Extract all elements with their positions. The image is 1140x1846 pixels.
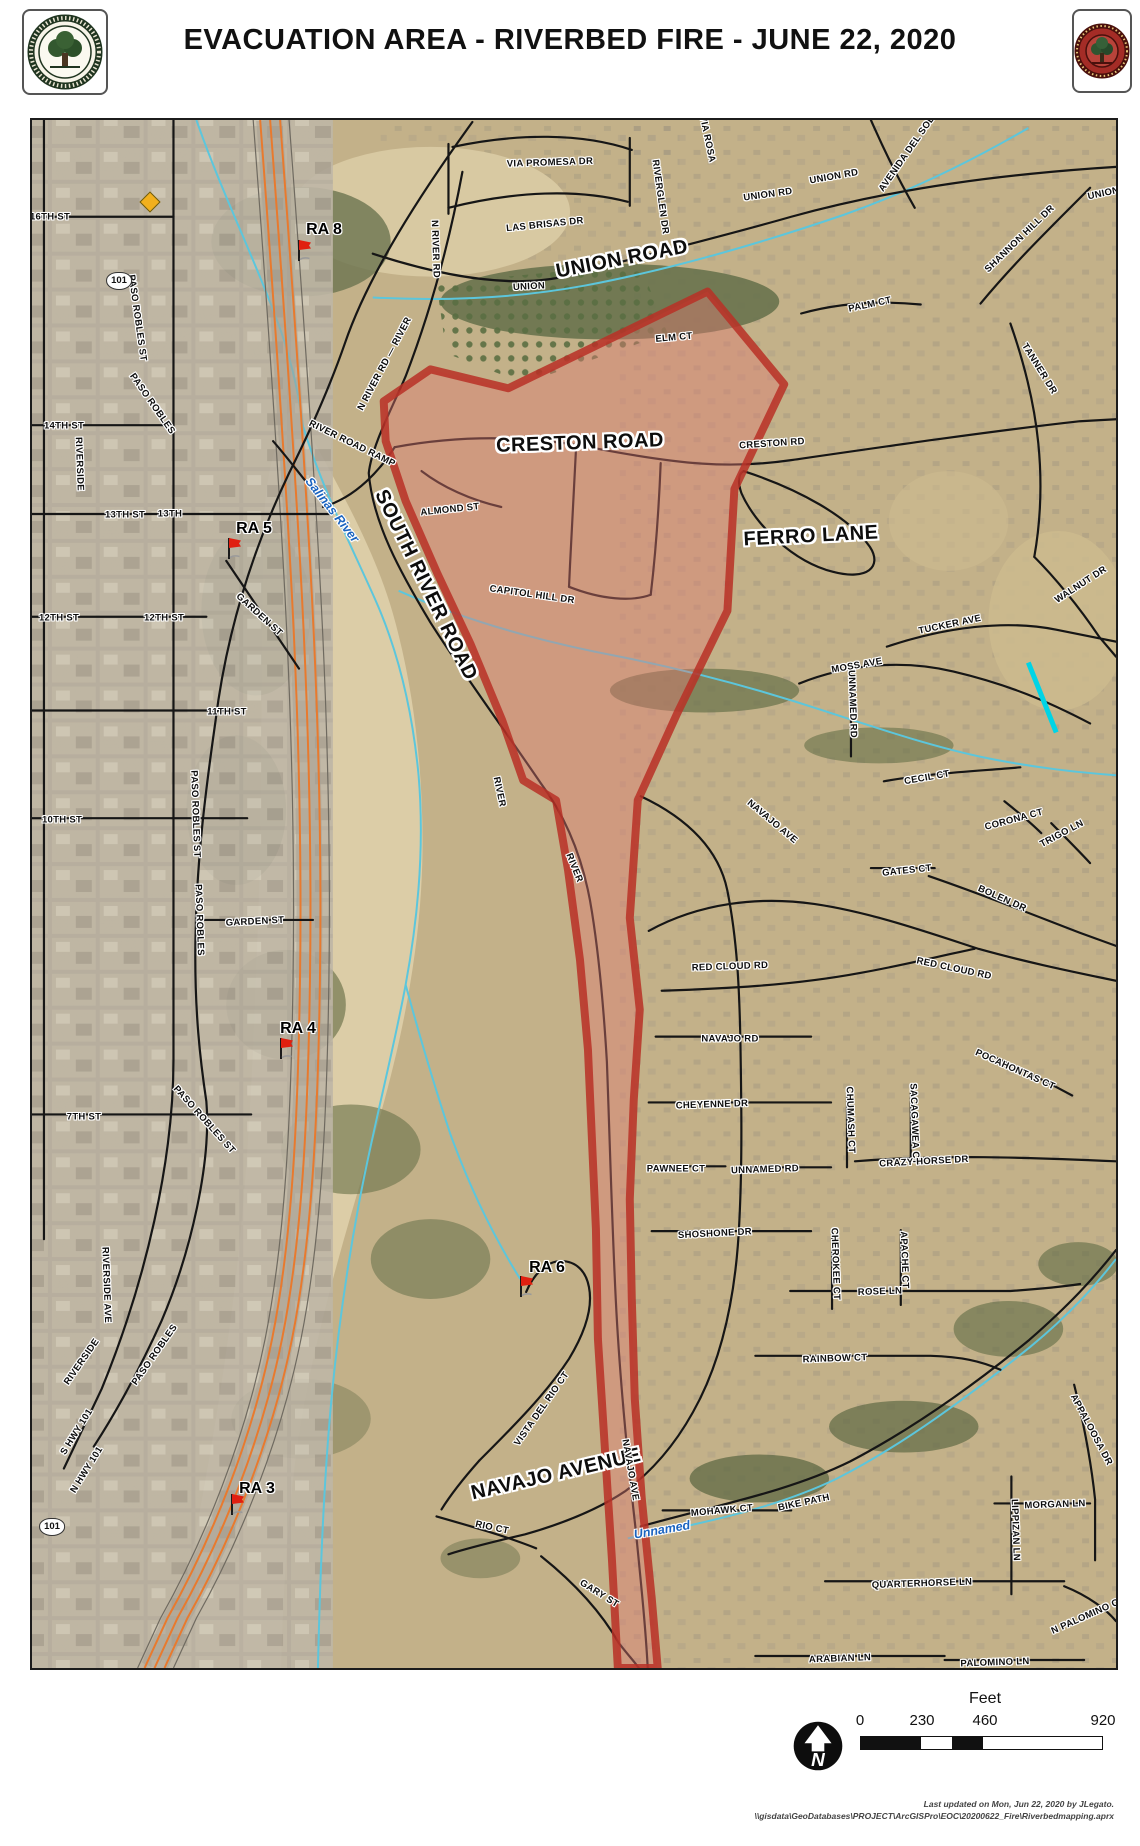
fire-seal-icon xyxy=(1072,9,1132,93)
road-label: APPALOOSA DR xyxy=(1068,1393,1114,1467)
road-label: CAPITOL HILL DR xyxy=(489,584,575,605)
road-label: N RIVER RD xyxy=(429,220,441,278)
map-label-layer: VIA PROMESA DRLAS BRISAS DRUNION ROADUNI… xyxy=(32,120,1116,1668)
road-label: UNNAMED RD xyxy=(731,1164,799,1176)
warning-sign-icon xyxy=(139,191,160,212)
road-label: BOLEN DR xyxy=(976,884,1027,914)
road-label: CRESTON RD xyxy=(739,437,805,451)
road-label: RIVERGLEN DR xyxy=(650,159,670,235)
road-label: CHEYENNE DR xyxy=(676,1099,749,1111)
road-label: RED CLOUD RD xyxy=(916,956,993,981)
road-label: RIVER xyxy=(564,852,584,884)
road-label: LAS BRISAS DR xyxy=(506,216,584,234)
road-label: PASO ROBLES ST xyxy=(126,274,148,362)
road-label: RIVERSIDE AVE xyxy=(100,1247,112,1324)
road-label: PASO ROBLES xyxy=(131,1323,180,1387)
road-label: 14TH ST xyxy=(44,421,84,431)
footer-notes: Last updated on Mon, Jun 22, 2020 by JLe… xyxy=(394,1798,1114,1822)
road-label: GARDEN ST xyxy=(225,916,284,929)
scale-bar xyxy=(860,1736,1103,1750)
road-label: UNNAMED RD xyxy=(846,670,858,738)
road-label: 7TH ST xyxy=(67,1112,102,1122)
road-label: 10TH ST xyxy=(42,815,82,825)
road-label: RED CLOUD RD xyxy=(692,961,769,973)
highway-shield: 101 xyxy=(39,1518,65,1536)
road-label: PASO ROBLES xyxy=(128,372,177,436)
road-label: TANNER DR xyxy=(1020,342,1059,396)
footer-file-path: \\gisdata\GeoDatabases\PROJECT\ArcGISPro… xyxy=(394,1810,1114,1822)
road-label: PAWNEE CT xyxy=(647,1164,705,1174)
road-label: NAVAJO AVENUE xyxy=(469,1445,643,1504)
ra-marker-label: RA 8 xyxy=(306,221,342,239)
road-label: UNION RD xyxy=(743,187,793,203)
road-label: TRIGO LN xyxy=(1039,819,1086,850)
road-label: GATES CT xyxy=(882,864,932,879)
road-label: BIKE PATH xyxy=(777,1493,830,1513)
road-label: S HWY 101 xyxy=(59,1407,95,1456)
highway-shield: 101 xyxy=(106,272,132,290)
road-label: CRESTON ROAD xyxy=(496,430,664,456)
road-label: PALM CT xyxy=(848,296,893,314)
flag-icon xyxy=(295,238,313,267)
road-label: 13TH ST xyxy=(105,510,145,520)
road-label: PASO ROBLES ST xyxy=(171,1084,237,1155)
road-label: NAVAJO AVE xyxy=(745,798,799,845)
city-seal-icon xyxy=(22,9,108,95)
flag-icon xyxy=(517,1274,535,1303)
road-label: PASO ROBLES xyxy=(193,884,205,956)
north-label: N xyxy=(811,1750,825,1771)
road-label: RIO CT xyxy=(474,1520,509,1536)
road-label: GARDEN ST xyxy=(234,592,284,638)
scale-tick: 0 xyxy=(856,1712,864,1729)
road-label: CHUMASH CT xyxy=(844,1086,856,1153)
road-label: UNION xyxy=(513,281,546,292)
road-label: N HWY 101 xyxy=(69,1445,105,1495)
flag-icon xyxy=(228,1492,246,1521)
road-label: FERRO LANE xyxy=(743,522,879,549)
road-label: 13TH xyxy=(158,509,182,519)
road-label: TUCKER AVE xyxy=(918,614,982,637)
road-label: 11TH ST xyxy=(207,707,247,717)
road-label: RIVERSIDE xyxy=(73,437,84,491)
road-label: SHOSHONE DR xyxy=(678,1227,752,1240)
road-label: NAVAJO RD xyxy=(701,1034,758,1044)
road-label: ROSE LN xyxy=(858,1286,903,1297)
scale-tick: 230 xyxy=(909,1712,934,1729)
road-label: PASO ROBLES ST xyxy=(189,770,202,858)
road-label: SHANNON HILL DR xyxy=(983,203,1056,274)
north-arrow-icon: N xyxy=(791,1719,845,1773)
scale-bar-segment xyxy=(861,1737,921,1749)
road-label: 16TH ST xyxy=(30,212,70,222)
road-label: 12TH ST xyxy=(39,613,79,623)
water-label: Unnamed xyxy=(633,1519,691,1541)
road-label: CHEROKEE CT xyxy=(829,1228,841,1301)
scale-tick: 460 xyxy=(972,1712,997,1729)
road-label: MOSS AVE xyxy=(831,657,883,675)
water-label: Salinas River xyxy=(303,475,361,545)
road-label: WALNUT DR xyxy=(1053,565,1108,605)
scale-bar-segment xyxy=(952,1737,983,1749)
road-label: N RIVER RD — RIVER xyxy=(356,316,413,412)
road-label: LIPPIZAN LN xyxy=(1009,1499,1021,1561)
road-label: 12TH ST xyxy=(144,613,184,623)
road-label: AVENIDA DEL SOL xyxy=(877,118,936,194)
road-label: VIA PROMESA DR xyxy=(507,157,594,170)
road-label: RIVER ROAD RAMP xyxy=(307,419,396,469)
road-label: UNION ROAD xyxy=(554,236,689,281)
scale-tick: 920 xyxy=(1090,1712,1115,1729)
road-label: RIVER xyxy=(491,776,507,808)
page-title: EVACUATION AREA - RIVERBED FIRE - JUNE 2… xyxy=(0,24,1140,57)
flag-icon xyxy=(225,536,243,565)
scale-units-label: Feet xyxy=(969,1690,1001,1708)
road-label: ELM CT xyxy=(655,332,693,345)
road-label: CORONA CT xyxy=(984,808,1044,833)
road-label: UNION RD xyxy=(809,168,859,186)
road-label: QUARTERHORSE LN xyxy=(872,1577,973,1590)
road-label: ALMOND ST xyxy=(420,502,480,518)
road-label: RIVERSIDE xyxy=(63,1337,102,1387)
road-label: CRAZY HORSE DR xyxy=(879,1155,969,1169)
road-label: SACAGAWEA CT xyxy=(908,1083,920,1165)
road-label: POCAHONTAS CT xyxy=(974,1048,1056,1092)
page: EVACUATION AREA - RIVERBED FIRE - JUNE 2… xyxy=(0,0,1140,1846)
road-label: GARY ST xyxy=(578,1578,620,1609)
road-label: N PALOMINO CIR xyxy=(1050,1594,1118,1637)
road-label: PALOMINO LN xyxy=(960,1657,1029,1669)
road-label: VIA ROSA xyxy=(697,118,716,163)
road-label: MORGAN LN xyxy=(1024,1499,1086,1511)
road-label: APACHE CT xyxy=(898,1231,909,1289)
road-label: CECIL CT xyxy=(904,769,951,786)
road-label: UNION RD xyxy=(1087,182,1118,202)
road-label: MOHAWK CT xyxy=(691,1504,754,1519)
footer-updated-note: Last updated on Mon, Jun 22, 2020 by JLe… xyxy=(394,1798,1114,1810)
road-label: RAINBOW CT xyxy=(802,1353,867,1365)
flag-icon xyxy=(277,1036,295,1065)
road-label: VISTA DEL RIO CT xyxy=(513,1370,571,1448)
road-label: ARABIAN LN xyxy=(809,1653,871,1665)
evacuation-map: VIA PROMESA DRLAS BRISAS DRUNION ROADUNI… xyxy=(30,118,1118,1670)
